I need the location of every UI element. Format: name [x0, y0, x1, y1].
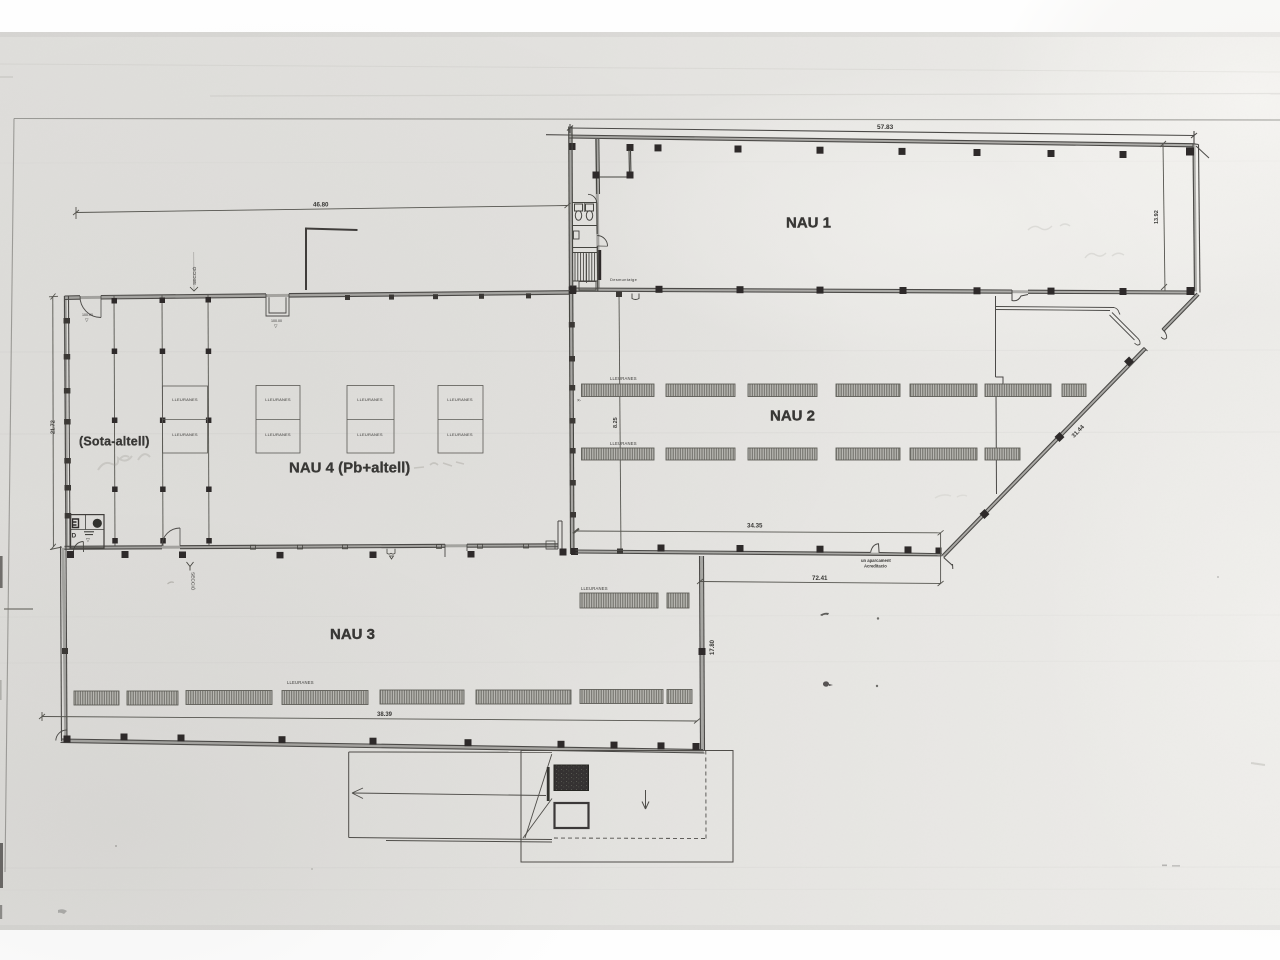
svg-text:LLEURANES: LLEURANES	[172, 397, 198, 402]
svg-text:LLEURANES: LLEURANES	[265, 432, 291, 437]
svg-text:▽: ▽	[274, 324, 278, 329]
svg-text:72.41: 72.41	[812, 575, 828, 582]
svg-text:LLEURANES: LLEURANES	[610, 441, 637, 446]
svg-text:21.72: 21.72	[51, 420, 57, 434]
svg-text:LLEURANES: LLEURANES	[357, 397, 383, 402]
svg-text:100.00: 100.00	[82, 313, 93, 317]
svg-text:LLEURANES: LLEURANES	[447, 397, 473, 402]
svg-text:Acreditacio: Acreditacio	[864, 564, 887, 569]
svg-text:17.80: 17.80	[710, 639, 716, 655]
svg-text:LLEURANES: LLEURANES	[610, 376, 637, 381]
svg-text:NAU 3: NAU 3	[330, 626, 375, 643]
svg-text:un aparcament: un aparcament	[861, 558, 891, 563]
svg-text:D: D	[72, 533, 77, 540]
svg-text:NAU 1: NAU 1	[786, 215, 831, 232]
svg-text:(Sota-altell): (Sota-altell)	[79, 435, 150, 449]
svg-text:NAU 4 (Pb+altell): NAU 4 (Pb+altell)	[289, 460, 410, 477]
svg-text:LLEURANES: LLEURANES	[581, 586, 608, 591]
svg-text:100.00: 100.00	[271, 319, 282, 323]
svg-text:LLEURANES: LLEURANES	[357, 432, 383, 437]
svg-text:13.92: 13.92	[1154, 210, 1160, 224]
svg-text:LLEURANES: LLEURANES	[172, 432, 198, 437]
svg-text:NAU 2: NAU 2	[770, 408, 815, 425]
svg-text:▽: ▽	[85, 318, 89, 323]
svg-text:46.80: 46.80	[313, 202, 329, 209]
svg-text:8.25: 8.25	[613, 417, 619, 428]
svg-text:SECCIÓ: SECCIÓ	[190, 572, 197, 591]
svg-text:LLEURANES: LLEURANES	[287, 680, 314, 685]
svg-text:×·: ×·	[577, 398, 582, 404]
svg-text:LLEURANES: LLEURANES	[447, 432, 473, 437]
svg-text:▽: ▽	[86, 538, 90, 544]
svg-text:38.39: 38.39	[377, 712, 393, 718]
svg-text:Desmuntatge: Desmuntatge	[610, 277, 638, 282]
svg-text:SECCIÓ: SECCIÓ	[191, 266, 198, 285]
svg-text:57.83: 57.83	[877, 124, 894, 131]
svg-text:34.35: 34.35	[747, 523, 763, 530]
svg-text:LLEURANES: LLEURANES	[265, 397, 291, 402]
